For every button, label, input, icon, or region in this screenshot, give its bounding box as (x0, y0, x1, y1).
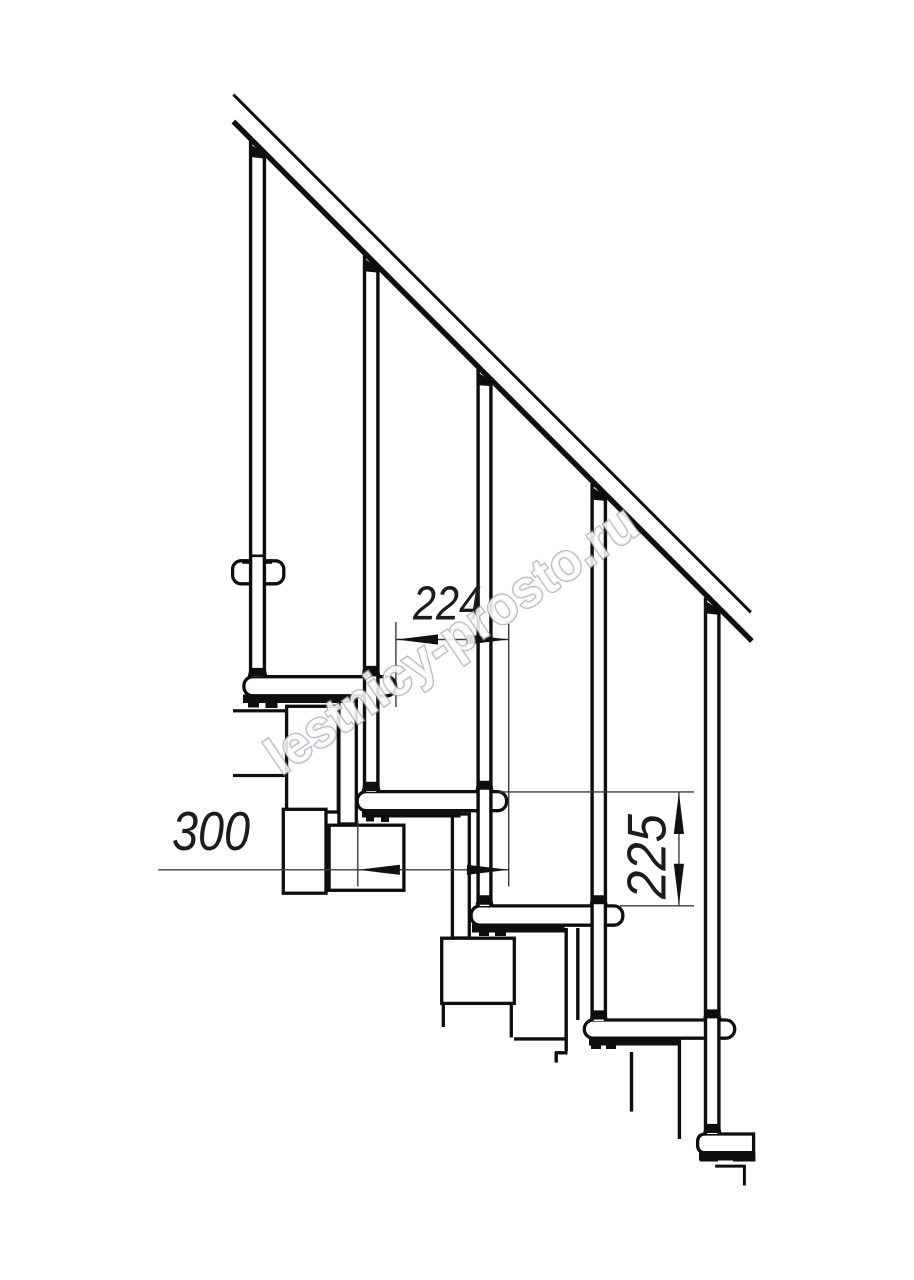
svg-text:lestnicy-prosto.ru: lestnicy-prosto.ru (255, 493, 649, 786)
svg-text:225: 225 (616, 814, 678, 900)
svg-text:300: 300 (172, 800, 250, 862)
